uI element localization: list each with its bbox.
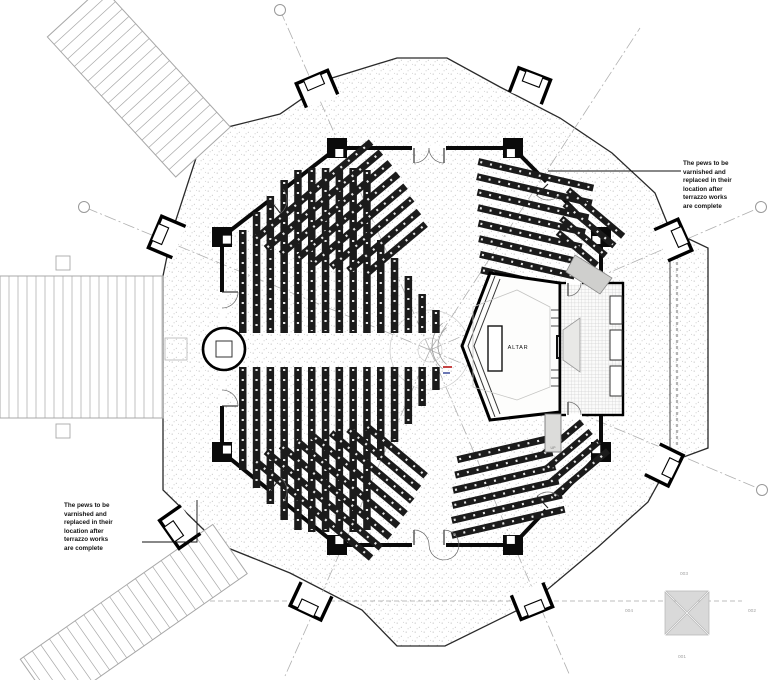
ref-symbol — [665, 591, 709, 635]
altar-label: ALTAR — [508, 345, 529, 351]
floor-plan: ALTAR UP 003 002 001 004 The pews to be … — [0, 0, 769, 680]
ref-label-top: 003 — [680, 571, 688, 577]
up-ramp-label: UP — [551, 446, 557, 450]
external-stair-flight — [20, 524, 247, 680]
ref-label-bottom: 001 — [678, 654, 686, 660]
external-stair-flight — [47, 0, 230, 177]
baptismal-font — [203, 328, 245, 370]
annotation-note-bottom-left: The pews to be varnished and replaced in… — [64, 502, 118, 553]
ref-label-left: 004 — [625, 608, 633, 614]
architectural-plan-svg: ALTAR UP 003 002 001 004 — [0, 0, 769, 680]
ref-label-right: 002 — [748, 608, 756, 614]
annotation-note-top-right: The pews to be varnished and replaced in… — [683, 160, 737, 211]
